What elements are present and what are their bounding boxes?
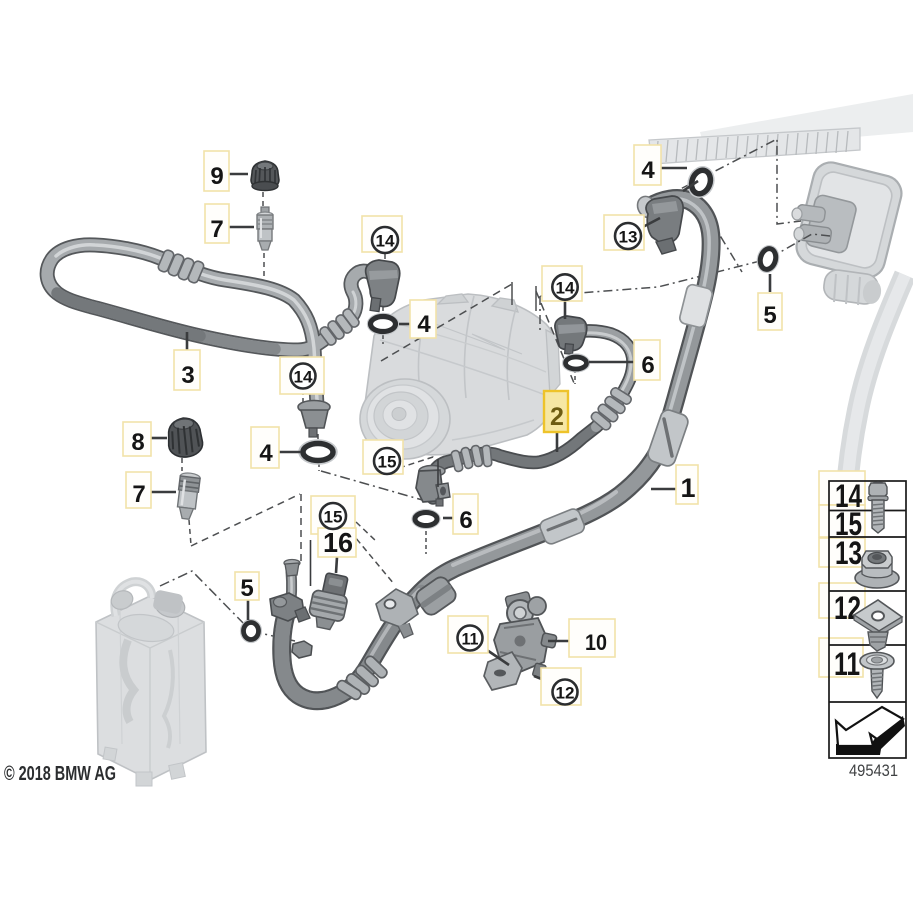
svg-text:495431: 495431 (849, 762, 898, 780)
svg-text:5: 5 (763, 302, 776, 329)
svg-text:14: 14 (376, 232, 396, 251)
svg-text:7: 7 (210, 216, 223, 243)
svg-text:14: 14 (294, 368, 314, 387)
svg-text:4: 4 (417, 311, 431, 338)
svg-text:14: 14 (556, 279, 576, 298)
svg-text:© 2018 BMW AG: © 2018 BMW AG (4, 763, 116, 785)
svg-text:15: 15 (378, 453, 397, 472)
svg-text:4: 4 (259, 440, 273, 467)
svg-text:5: 5 (240, 575, 253, 602)
svg-text:7: 7 (132, 481, 145, 508)
svg-text:10: 10 (585, 630, 607, 655)
svg-text:1: 1 (680, 473, 695, 503)
svg-text:3: 3 (181, 362, 194, 389)
svg-text:8: 8 (131, 429, 144, 456)
svg-text:9: 9 (210, 163, 223, 190)
svg-text:2: 2 (550, 403, 564, 431)
svg-text:6: 6 (641, 352, 654, 379)
svg-text:4: 4 (641, 157, 655, 184)
svg-text:12: 12 (556, 684, 575, 703)
svg-text:15: 15 (324, 508, 343, 527)
svg-text:11: 11 (834, 646, 860, 682)
svg-text:11: 11 (462, 630, 479, 649)
svg-text:16: 16 (323, 527, 353, 558)
svg-text:13: 13 (619, 228, 638, 247)
svg-text:6: 6 (459, 507, 472, 534)
svg-text:13: 13 (835, 535, 862, 571)
